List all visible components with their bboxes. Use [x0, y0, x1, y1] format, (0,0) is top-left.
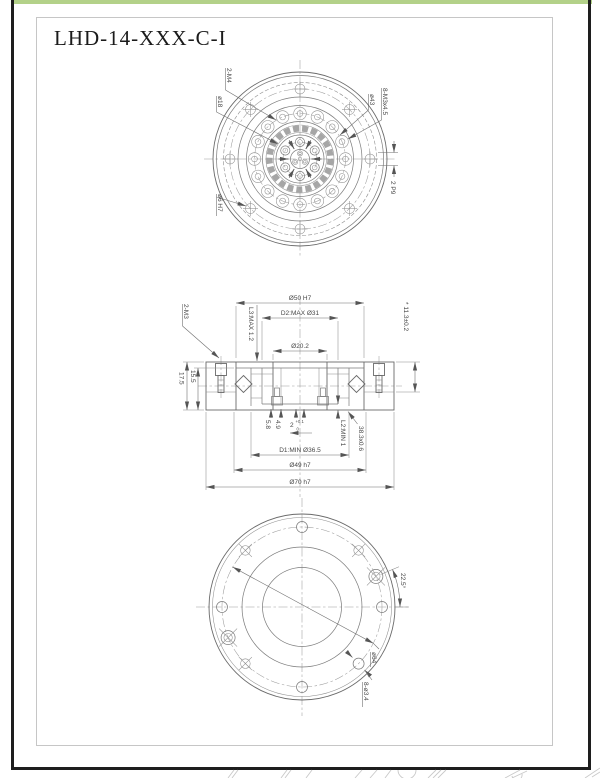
- dim-label-angle: 22.5°: [399, 573, 407, 589]
- section-view: Ø50 H7 D2:MAX Ø31 Ø20.2 L3:MAX 1.2 2-M3: [178, 295, 421, 497]
- drawing-canvas: 2-M4 ø18 ø43 8-M3x4.5: [0, 0, 600, 778]
- dim-113: * 11.3±0.2: [396, 302, 420, 392]
- front-view: 2-M4 ø18 ø43 8-M3x4.5: [204, 60, 398, 258]
- dim-label-2m3: 2-M3: [182, 304, 189, 319]
- label-d6h7: ø6 H7: [216, 194, 223, 212]
- dim-label-key2: 2: [290, 422, 294, 429]
- dim-label-d2max: D2:MAX Ø31: [281, 310, 320, 317]
- dim-label-113: * 11.3±0.2: [402, 302, 409, 331]
- dim-small-bottom: 5.8 4.9 2 +0.1 0: [264, 409, 312, 433]
- dim-l2: L2:MIN 1: [338, 397, 346, 447]
- dim-label-ring: 38.3x0.6: [357, 426, 364, 451]
- label-8m3: 8-M3x4.5: [381, 88, 388, 115]
- dim-label-58: 5.8: [264, 420, 271, 429]
- dim-label-d202: Ø20.2: [291, 343, 309, 350]
- front-label-d18: ø18: [216, 96, 278, 144]
- dim-label-bc64: ø64: [370, 652, 377, 664]
- dim-label-key2-hi: +0.1: [296, 419, 305, 424]
- dim-label-d70: Ø70 h7: [289, 479, 311, 486]
- dim-label-l3: L3:MAX 1.2: [247, 307, 254, 341]
- dim-bc64: ø64: [233, 567, 379, 667]
- label-key-2p9: 2 P9: [389, 181, 396, 195]
- label-retaining-ring: 38.3x0.6: [348, 412, 364, 452]
- dim-155: 15.5: [189, 368, 234, 410]
- drawing-sheet: LHD-14-XXX-C-I: [0, 0, 600, 778]
- dim-label-d1min: D1:MIN Ø36.5: [279, 447, 321, 454]
- dim-label-175: 17.5: [178, 372, 185, 385]
- back-view: ø64 8-ø3.4 22.5°: [196, 498, 409, 716]
- underlay-sketch-lines: [228, 768, 600, 778]
- dim-label-key2-lo: 0: [297, 427, 300, 432]
- front-label-d43: ø43: [340, 94, 375, 135]
- label-2m3: 2-M3: [182, 304, 219, 358]
- label-2m4: 2-M4: [225, 68, 232, 83]
- dim-label-d50: Ø50 H7: [289, 295, 312, 302]
- dim-label-l2: L2:MIN 1: [339, 420, 346, 447]
- front-keyway-dim: 2 P9: [378, 141, 398, 195]
- label-d18: ø18: [216, 96, 223, 108]
- dim-l3: L3:MAX 1.2: [247, 305, 257, 361]
- dim-label-8holes: 8-ø3.4: [362, 682, 369, 701]
- dim-label-155: 15.5: [189, 370, 196, 383]
- dim-label-d49: Ø49 h7: [289, 462, 311, 469]
- label-d43: ø43: [368, 94, 375, 106]
- dim-label-49: 4.9: [274, 420, 281, 429]
